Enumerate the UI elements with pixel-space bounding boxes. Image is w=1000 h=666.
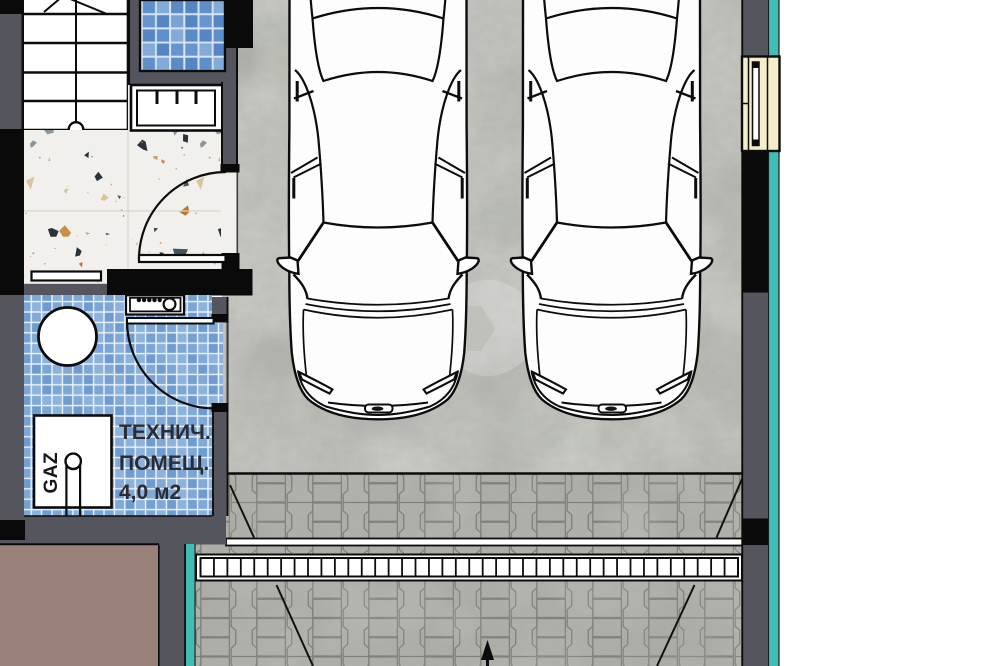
svg-text:4,0 м2: 4,0 м2 <box>119 481 181 504</box>
svg-text:GAZ: GAZ <box>41 452 62 494</box>
svg-text:ТЕХНИЧ.: ТЕХНИЧ. <box>119 421 211 444</box>
svg-text:ПОМЕЩ.: ПОМЕЩ. <box>119 452 209 475</box>
